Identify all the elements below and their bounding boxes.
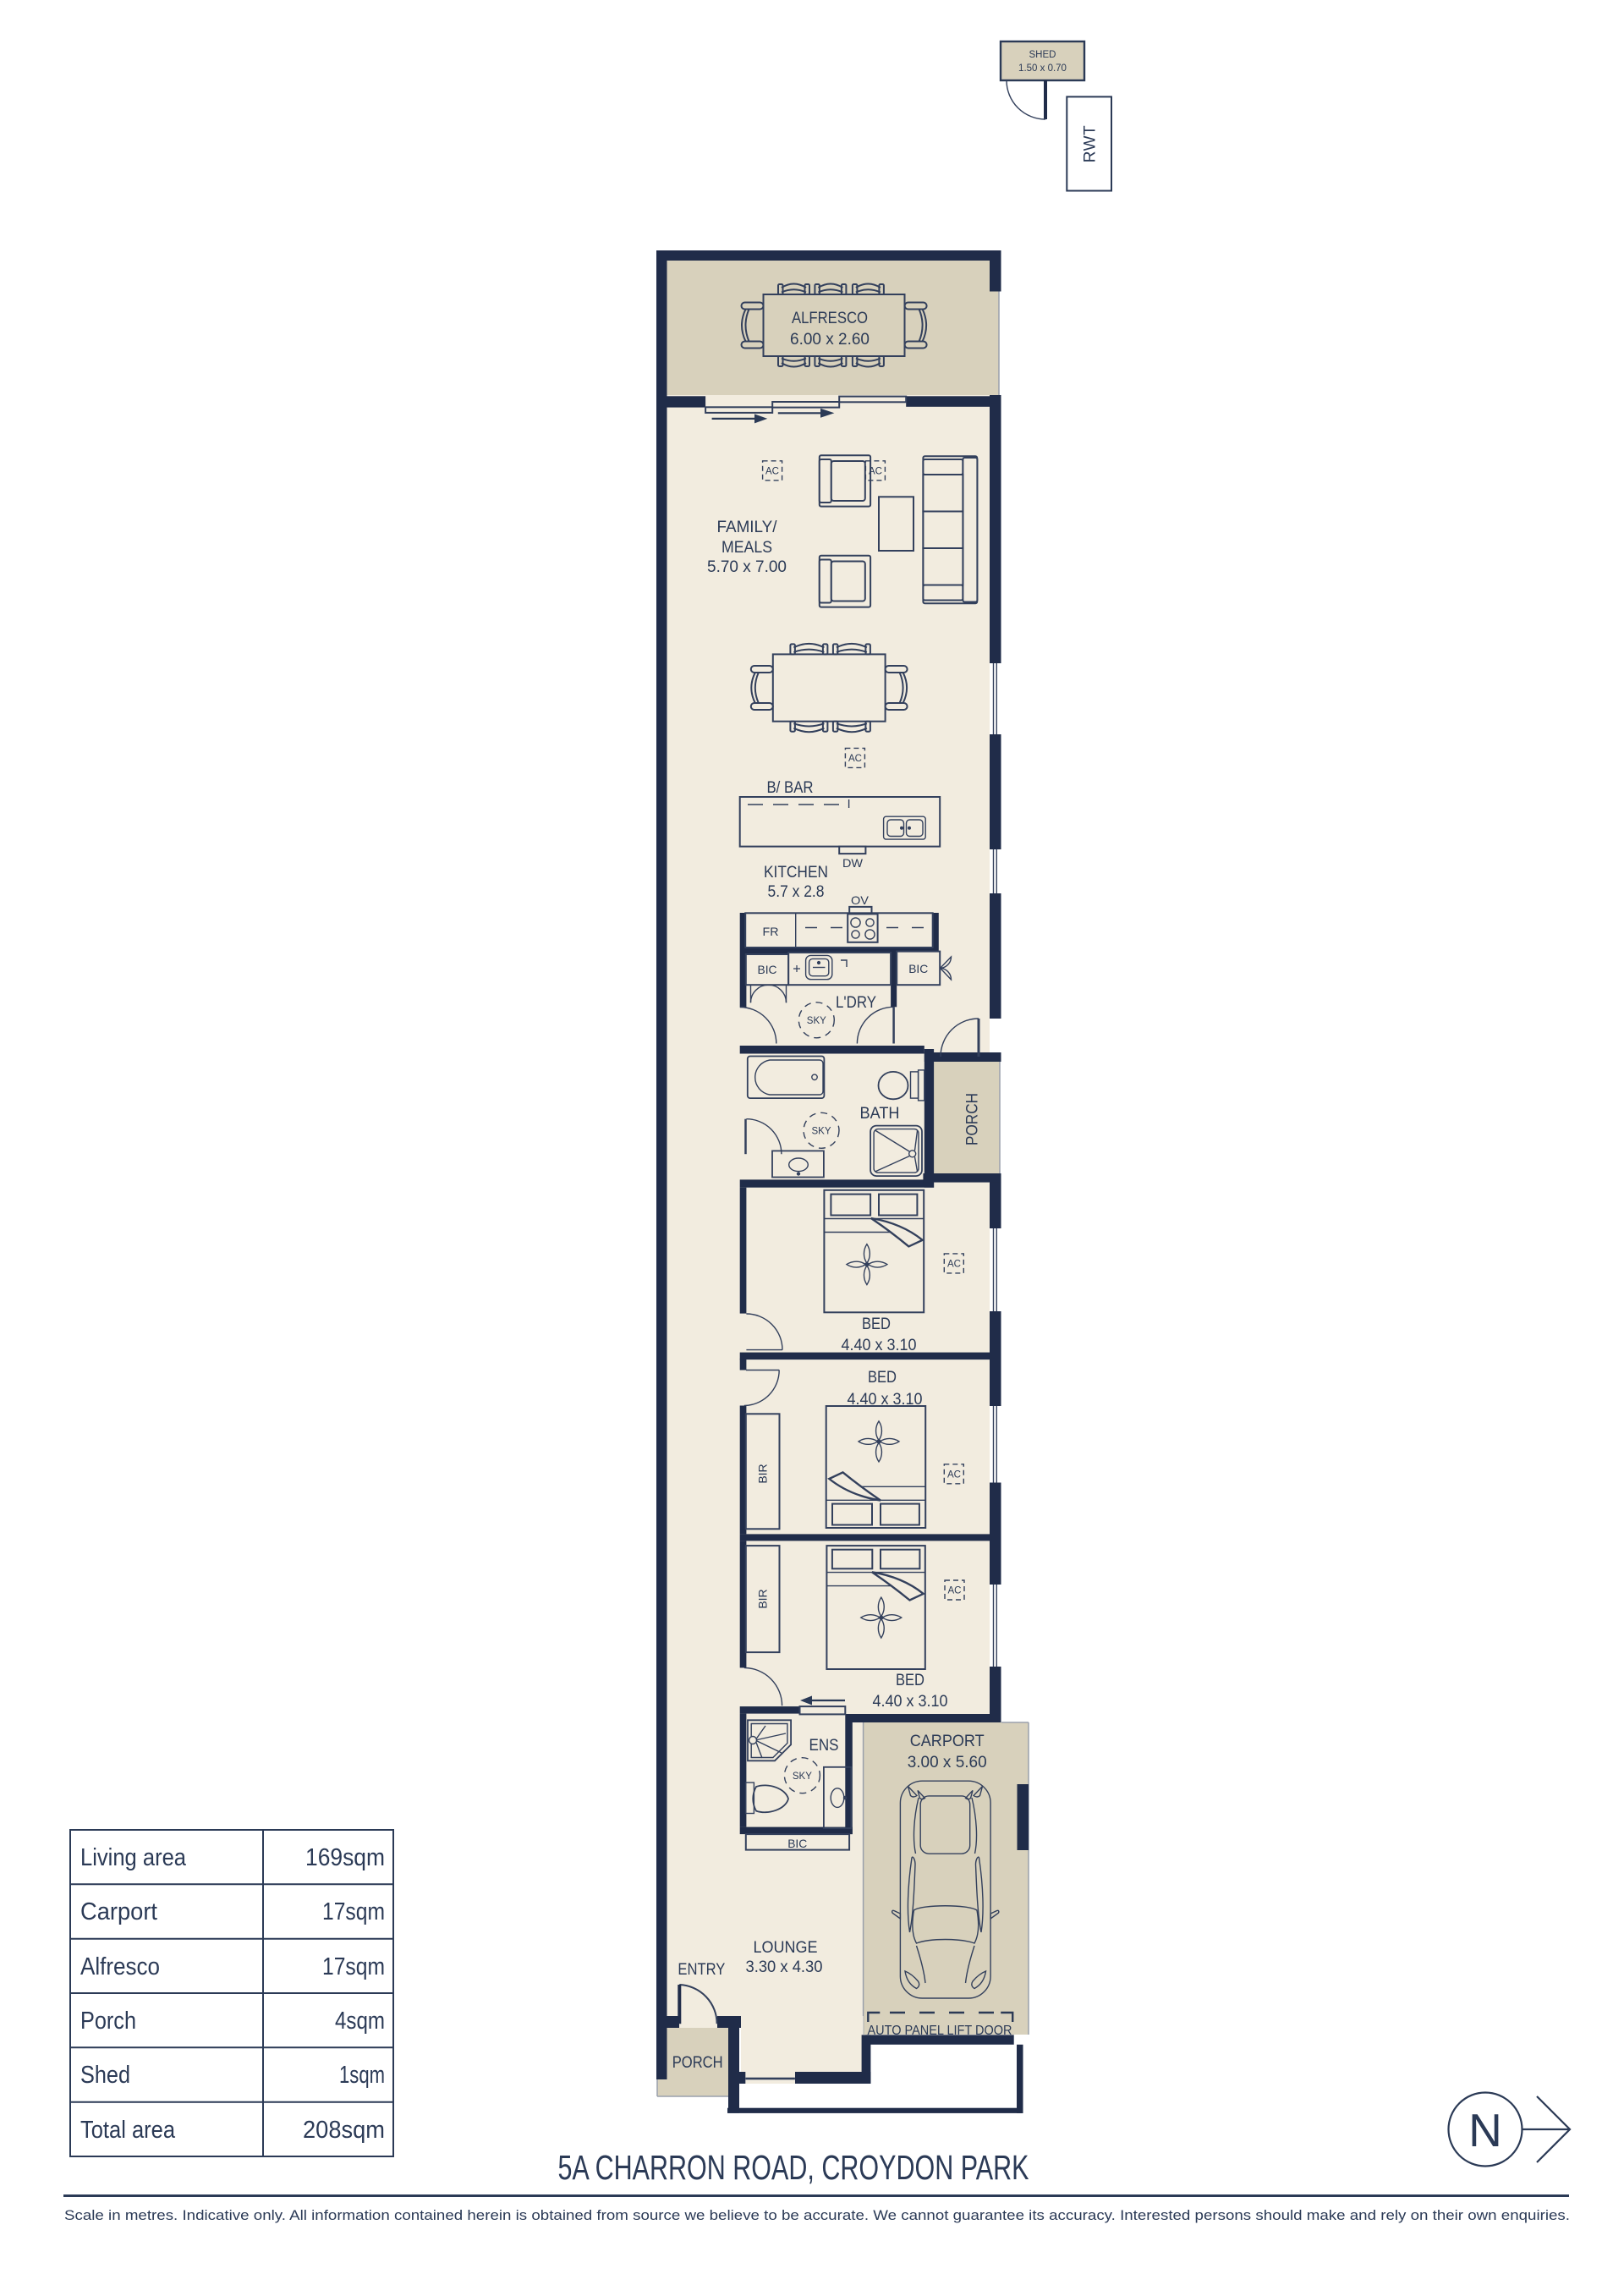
- svg-text:4sqm: 4sqm: [335, 2008, 385, 2035]
- svg-text:AC: AC: [765, 467, 779, 477]
- svg-text:Living area: Living area: [80, 1844, 187, 1871]
- svg-text:KITCHEN: KITCHEN: [764, 864, 828, 882]
- svg-text:DW: DW: [842, 856, 864, 870]
- svg-text:PORCH: PORCH: [672, 2054, 723, 2072]
- svg-text:RWT: RWT: [1082, 125, 1100, 162]
- svg-text:4.40 x 3.10: 4.40 x 3.10: [842, 1337, 917, 1354]
- svg-text:BIC: BIC: [787, 1837, 807, 1850]
- svg-text:BIC: BIC: [908, 962, 928, 975]
- svg-text:1.50 x 0.70: 1.50 x 0.70: [1018, 63, 1067, 74]
- svg-text:BIR: BIR: [756, 1464, 770, 1483]
- svg-text:5.7 x 2.8: 5.7 x 2.8: [768, 883, 825, 901]
- svg-text:CARPORT: CARPORT: [910, 1733, 985, 1750]
- svg-text:5.70 x 7.00: 5.70 x 7.00: [707, 558, 787, 576]
- svg-text:Porch: Porch: [80, 2008, 136, 2035]
- svg-text:BED: BED: [862, 1316, 891, 1333]
- svg-text:Carport: Carport: [80, 1898, 157, 1925]
- svg-text:ENS: ENS: [809, 1737, 839, 1755]
- svg-text:FAMILY/: FAMILY/: [717, 519, 778, 536]
- svg-text:SKY: SKY: [811, 1127, 831, 1137]
- svg-text:AUTO PANEL LIFT DOOR: AUTO PANEL LIFT DOOR: [868, 2024, 1012, 2038]
- svg-text:SHED: SHED: [1029, 50, 1056, 60]
- svg-text:Total area: Total area: [80, 2117, 176, 2144]
- svg-text:MEALS: MEALS: [721, 539, 772, 557]
- svg-text:3.30 x 4.30: 3.30 x 4.30: [746, 1958, 823, 1976]
- svg-text:5A CHARRON ROAD, CROYDON PARK: 5A CHARRON ROAD, CROYDON PARK: [558, 2148, 1029, 2187]
- svg-text:BIC: BIC: [758, 963, 777, 976]
- svg-text:4.40 x 3.10: 4.40 x 3.10: [873, 1693, 948, 1711]
- svg-text:LOUNGE: LOUNGE: [754, 1939, 818, 1957]
- svg-text:Alfresco: Alfresco: [80, 1953, 160, 1980]
- svg-text:169sqm: 169sqm: [305, 1844, 385, 1871]
- svg-text:N: N: [1468, 2104, 1502, 2156]
- svg-text:AC: AC: [947, 1260, 961, 1270]
- svg-text:1sqm: 1sqm: [339, 2062, 385, 2089]
- svg-text:PORCH: PORCH: [964, 1093, 982, 1145]
- svg-text:3.00 x 5.60: 3.00 x 5.60: [908, 1754, 987, 1771]
- svg-text:FR: FR: [763, 925, 779, 938]
- svg-text:ENTRY: ENTRY: [678, 1961, 725, 1979]
- svg-text:BED: BED: [868, 1369, 897, 1387]
- svg-text:17sqm: 17sqm: [322, 1953, 385, 1980]
- svg-text:AC: AC: [948, 1586, 962, 1596]
- svg-text:Shed: Shed: [80, 2062, 130, 2089]
- svg-text:Scale in metres. Indicative on: Scale in metres. Indicative only. All in…: [64, 2207, 1570, 2223]
- svg-text:6.00 x 2.60: 6.00 x 2.60: [790, 331, 870, 349]
- svg-text:17sqm: 17sqm: [322, 1898, 385, 1925]
- svg-text:OV: OV: [851, 893, 870, 907]
- svg-text:AC: AC: [947, 1470, 961, 1480]
- svg-text:BIR: BIR: [756, 1589, 770, 1608]
- svg-text:ALFRESCO: ALFRESCO: [792, 310, 868, 327]
- svg-text:BATH: BATH: [860, 1105, 900, 1123]
- svg-text:SKY: SKY: [807, 1016, 826, 1026]
- svg-text:AC: AC: [869, 467, 882, 477]
- svg-text:BED: BED: [896, 1672, 924, 1689]
- svg-text:208sqm: 208sqm: [303, 2117, 385, 2144]
- svg-text:L'DRY: L'DRY: [836, 994, 876, 1012]
- svg-text:B/ BAR: B/ BAR: [767, 779, 814, 797]
- svg-text:AC: AC: [848, 754, 862, 764]
- svg-text:SKY: SKY: [793, 1771, 812, 1782]
